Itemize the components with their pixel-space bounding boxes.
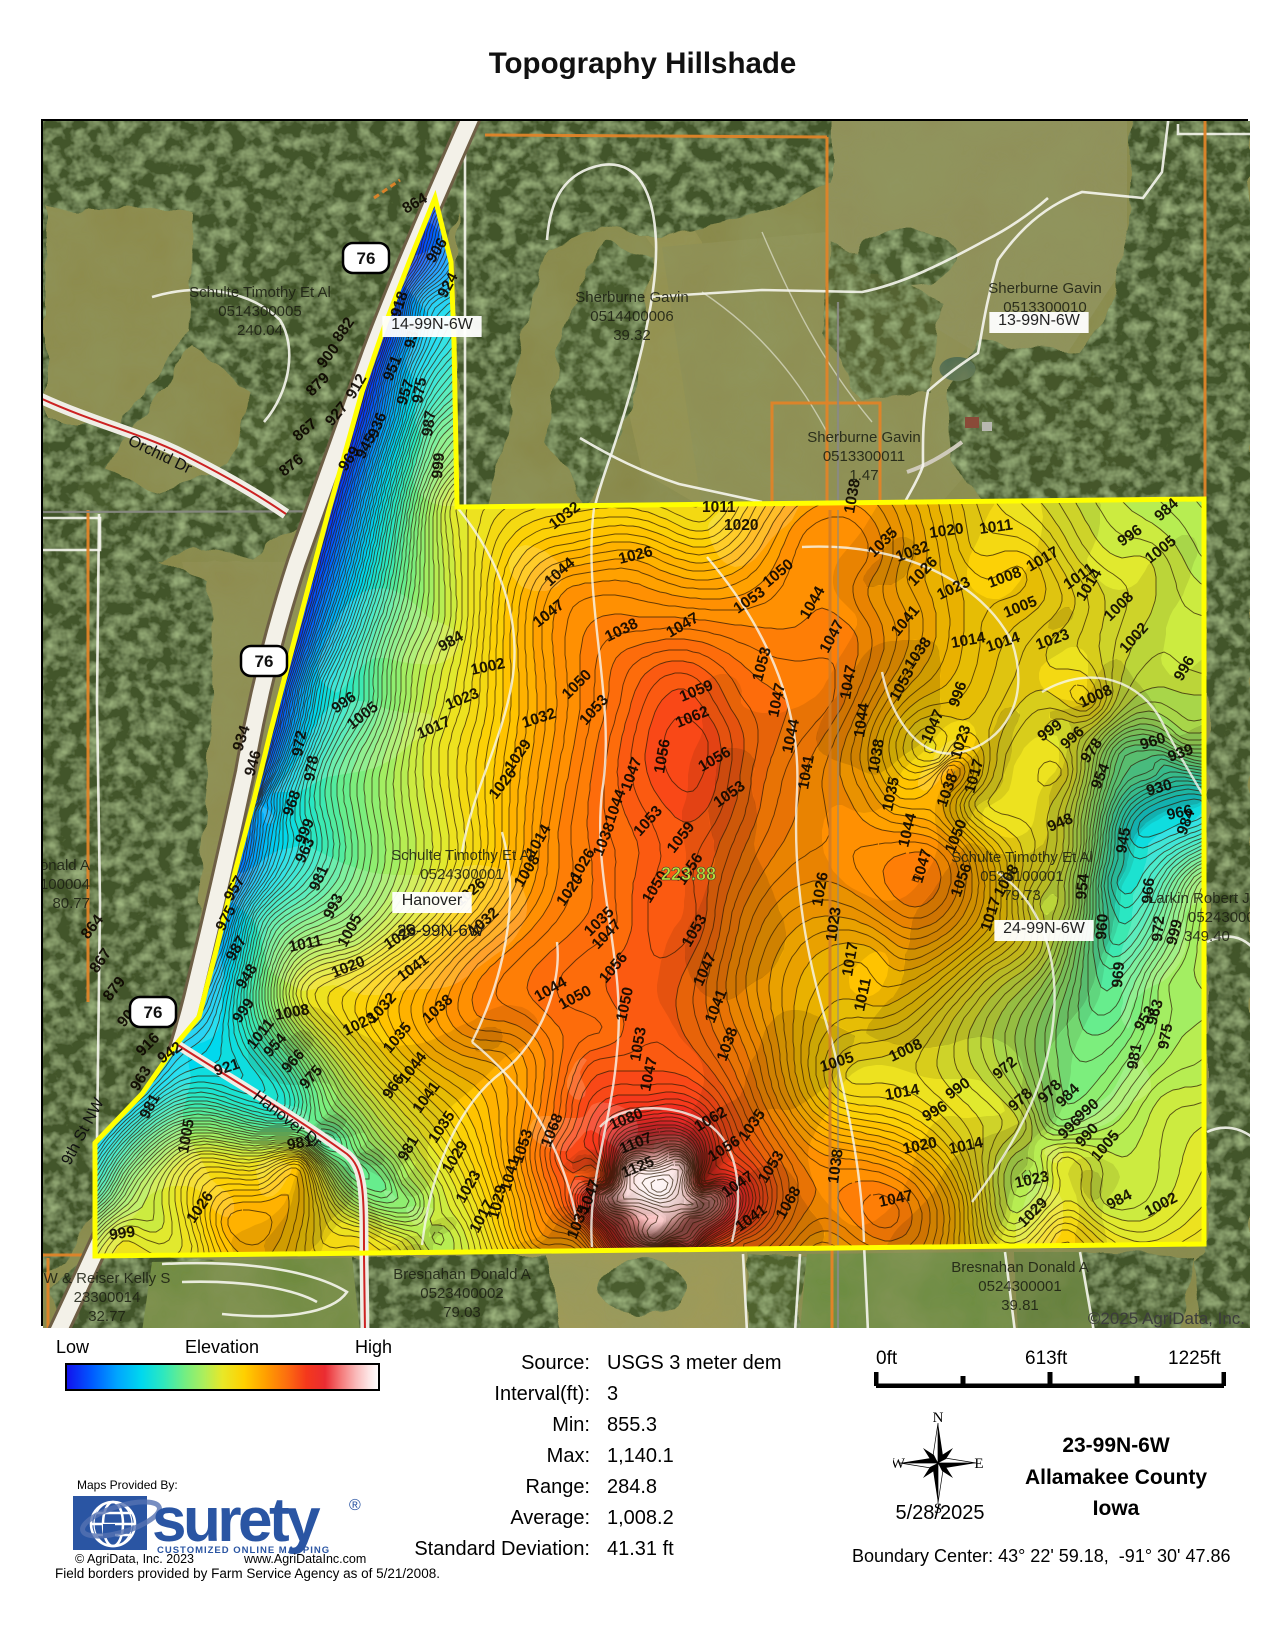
svg-text:1.47: 1.47 bbox=[849, 467, 878, 484]
svg-text:Schulte Timothy Et Al: Schulte Timothy Et Al bbox=[951, 849, 1093, 866]
svg-text:0524300001: 0524300001 bbox=[978, 1278, 1061, 1295]
svg-text:79.03: 79.03 bbox=[443, 1304, 481, 1321]
svg-text:Bresnahan Donald A: Bresnahan Donald A bbox=[393, 1266, 531, 1283]
svg-text:999: 999 bbox=[429, 452, 448, 480]
svg-text:®: ® bbox=[349, 1497, 361, 1514]
svg-text:987: 987 bbox=[419, 410, 439, 438]
svg-text:1020: 1020 bbox=[724, 517, 758, 534]
svg-text:E: E bbox=[974, 1456, 983, 1472]
svg-text:1011: 1011 bbox=[702, 499, 736, 516]
svg-text:W & Reiser Kelly S: W & Reiser Kelly S bbox=[44, 1270, 171, 1287]
svg-text:32.77: 32.77 bbox=[88, 1308, 126, 1325]
svg-text:05243000: 05243000 bbox=[1188, 909, 1250, 926]
svg-text:Hanover: Hanover bbox=[402, 892, 463, 909]
svg-text:Sherburne Gavin: Sherburne Gavin bbox=[988, 280, 1101, 297]
svg-text:han Donald A: han Donald A bbox=[43, 857, 90, 874]
svg-text:14-99N-6W: 14-99N-6W bbox=[391, 316, 474, 333]
svg-text:24-99N-6W: 24-99N-6W bbox=[1003, 920, 1086, 937]
svg-text:W: W bbox=[893, 1456, 906, 1472]
svg-text:Larkin Robert J: Larkin Robert J bbox=[1148, 890, 1250, 907]
svg-text:954: 954 bbox=[1073, 873, 1093, 901]
svg-text:999: 999 bbox=[108, 1223, 136, 1243]
svg-text:0514300005: 0514300005 bbox=[218, 303, 301, 320]
svg-text:349.40: 349.40 bbox=[1184, 928, 1230, 945]
svg-text:©2025 AgriData, Inc.: ©2025 AgriData, Inc. bbox=[1088, 1309, 1245, 1328]
svg-text:Sherburne Gavin: Sherburne Gavin bbox=[807, 429, 920, 446]
svg-text:39.32: 39.32 bbox=[613, 327, 651, 344]
svg-text:Sherburne Gavin: Sherburne Gavin bbox=[575, 289, 688, 306]
svg-text:79.73: 79.73 bbox=[1003, 887, 1041, 904]
svg-text:Schulte Timothy Et Al: Schulte Timothy Et Al bbox=[189, 284, 331, 301]
svg-text:23100004: 23100004 bbox=[43, 876, 90, 893]
svg-text:240.04: 240.04 bbox=[237, 322, 283, 339]
svg-text:76: 76 bbox=[357, 249, 376, 268]
svg-text:13-99N-6W: 13-99N-6W bbox=[998, 312, 1081, 329]
svg-text:0523400002: 0523400002 bbox=[420, 1285, 503, 1302]
svg-text:80.77: 80.77 bbox=[52, 895, 90, 912]
svg-text:960: 960 bbox=[1093, 913, 1112, 940]
svg-text:39.81: 39.81 bbox=[1001, 1297, 1039, 1314]
svg-text:76: 76 bbox=[144, 1003, 163, 1022]
svg-text:Schulte Timothy Et Al: Schulte Timothy Et Al bbox=[391, 847, 533, 864]
svg-text:23300014: 23300014 bbox=[74, 1289, 141, 1306]
svg-text:23-99N-6W: 23-99N-6W bbox=[397, 921, 484, 940]
svg-text:0524100001: 0524100001 bbox=[980, 868, 1063, 885]
svg-text:0524300001: 0524300001 bbox=[420, 866, 503, 883]
svg-text:Bresnahan Donald A: Bresnahan Donald A bbox=[951, 1259, 1089, 1276]
svg-text:969: 969 bbox=[1109, 961, 1128, 989]
svg-text:76: 76 bbox=[255, 652, 274, 671]
svg-text:0513300011: 0513300011 bbox=[823, 448, 905, 465]
svg-text:0514400006: 0514400006 bbox=[590, 308, 673, 325]
svg-text:223.88: 223.88 bbox=[661, 864, 716, 884]
